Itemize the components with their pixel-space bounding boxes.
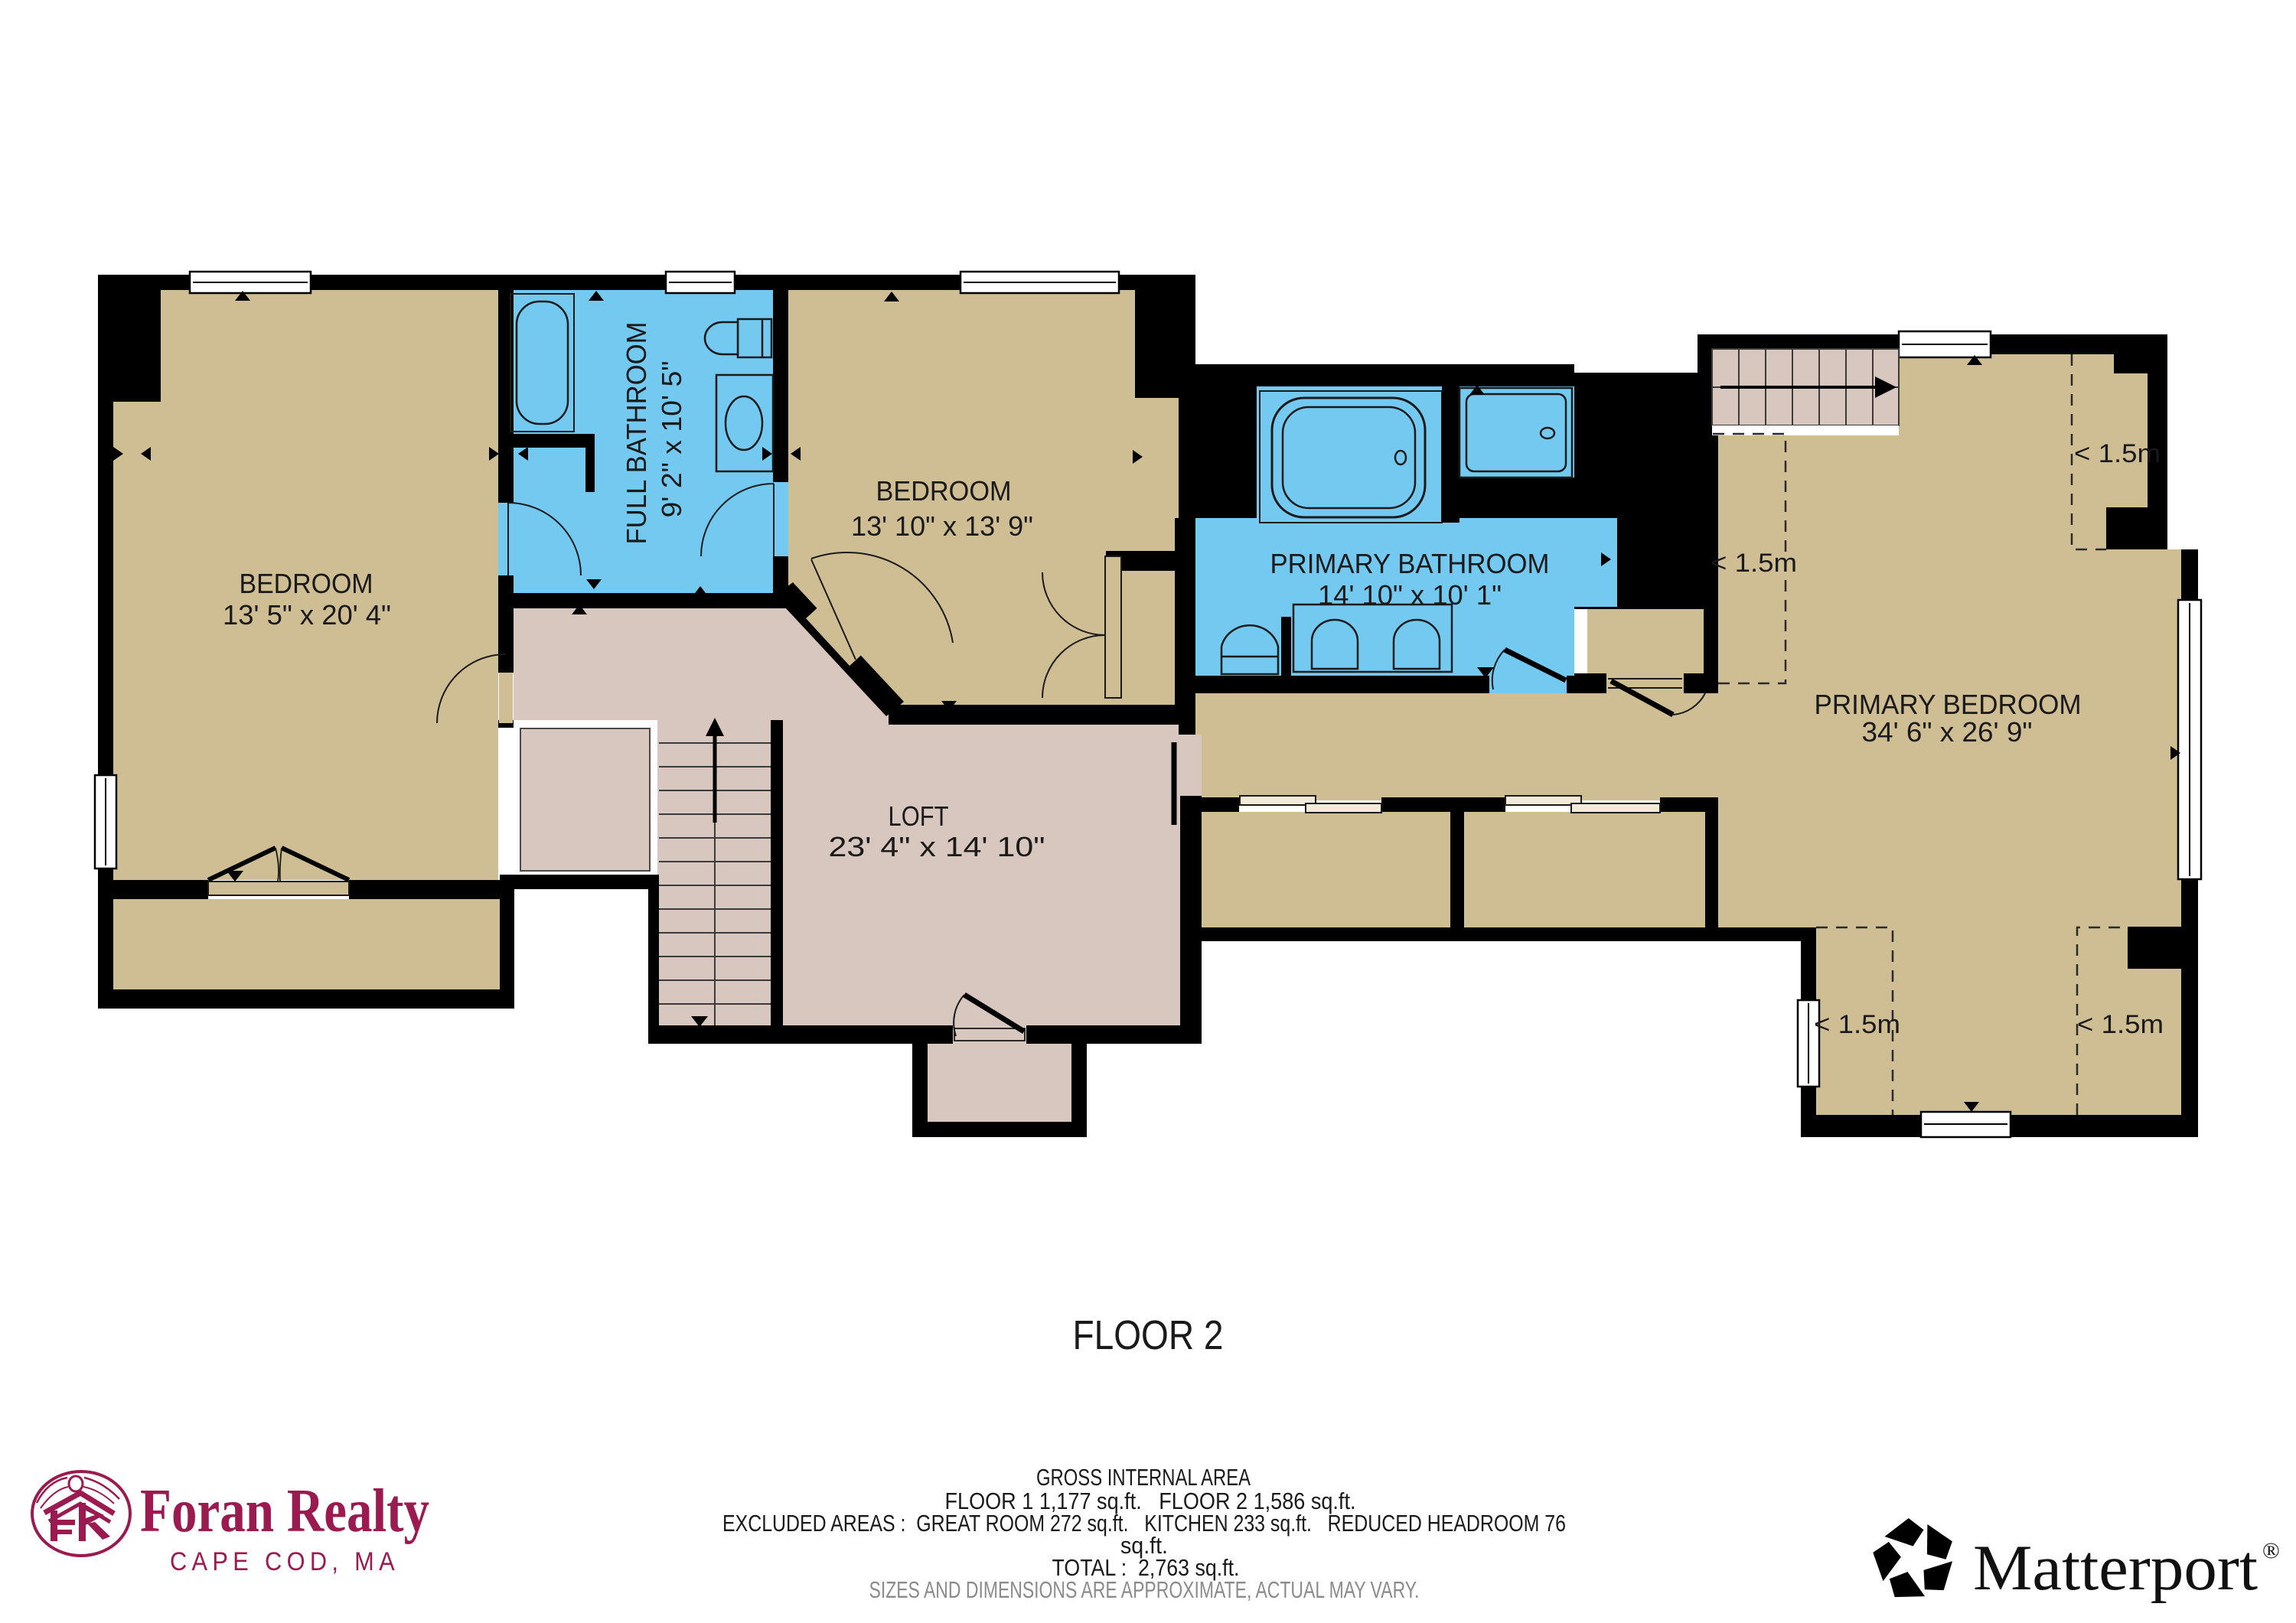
svg-text:13' 10" x 13' 9": 13' 10" x 13' 9" — [851, 510, 1033, 542]
svg-text:®: ® — [2262, 1538, 2280, 1563]
svg-text:13' 5" x 20' 4": 13' 5" x 20' 4" — [223, 599, 391, 631]
svg-text:FLOOR 2: FLOOR 2 — [1073, 1312, 1224, 1358]
svg-text:< 1.5m: < 1.5m — [1711, 549, 1797, 578]
svg-text:< 1.5m: < 1.5m — [2077, 1010, 2164, 1039]
svg-text:CAPE COD, MA: CAPE COD, MA — [170, 1547, 400, 1576]
svg-text:LOFT: LOFT — [889, 800, 949, 832]
svg-text:SIZES AND DIMENSIONS ARE APPRO: SIZES AND DIMENSIONS ARE APPROXIMATE, AC… — [869, 1576, 1420, 1603]
svg-text:9' 2" x 10' 5": 9' 2" x 10' 5" — [656, 361, 687, 518]
svg-text:BEDROOM: BEDROOM — [240, 568, 373, 599]
svg-text:BEDROOM: BEDROOM — [876, 475, 1012, 507]
svg-text:< 1.5m: < 1.5m — [1814, 1010, 1900, 1039]
svg-text:< 1.5m: < 1.5m — [2074, 439, 2161, 468]
svg-text:23' 4" x 14' 10": 23' 4" x 14' 10" — [829, 831, 1045, 862]
svg-text:Foran Realty: Foran Realty — [140, 1478, 429, 1545]
svg-text:FULL BATHROOM: FULL BATHROOM — [621, 322, 652, 545]
svg-text:PRIMARY BEDROOM: PRIMARY BEDROOM — [1815, 689, 2082, 720]
svg-text:14' 10" x 10' 1": 14' 10" x 10' 1" — [1318, 579, 1502, 611]
svg-text:PRIMARY BATHROOM: PRIMARY BATHROOM — [1270, 548, 1550, 579]
svg-text:34' 6" x 26' 9": 34' 6" x 26' 9" — [1862, 716, 2033, 748]
svg-text:Matterport: Matterport — [1973, 1532, 2258, 1604]
svg-text:GROSS INTERNAL AREA: GROSS INTERNAL AREA — [1036, 1464, 1251, 1491]
